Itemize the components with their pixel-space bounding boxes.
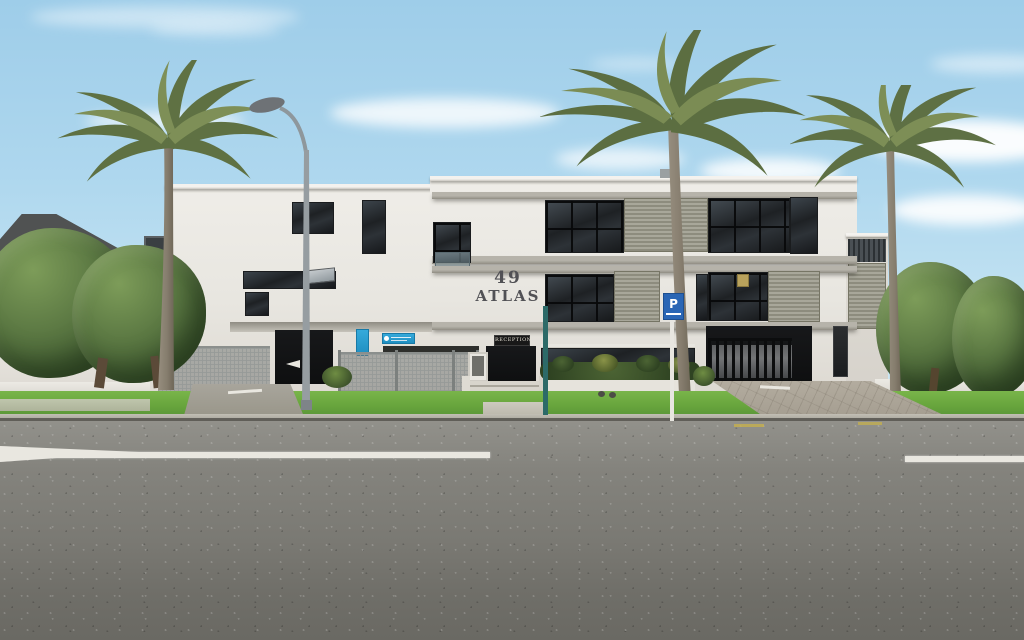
footpath — [0, 399, 150, 411]
teal-pole — [543, 306, 548, 415]
palm-tree-right — [790, 85, 1020, 430]
street-scene: 49 ATLAS RECEPTION — [0, 0, 1024, 640]
notice-board-paper — [472, 356, 484, 376]
juliet-balcony-glass — [435, 252, 470, 267]
mesh-fence — [340, 352, 478, 392]
sign-pole — [670, 318, 674, 421]
blue-sign-text-line — [391, 337, 411, 338]
reception-sign: RECEPTION — [494, 335, 530, 346]
palm-tree-center — [540, 30, 830, 430]
parking-sign: P — [663, 293, 684, 320]
road-line — [905, 456, 1024, 462]
reception-entrance — [486, 346, 536, 382]
utility-cover — [609, 392, 616, 398]
street-lamp — [240, 90, 330, 415]
utility-cover — [598, 391, 605, 397]
cloud — [330, 98, 560, 128]
parking-sign-text-line — [666, 313, 681, 315]
building-number-text: 49 — [470, 268, 546, 288]
blue-sign-logo-dot — [384, 336, 389, 341]
cloud — [150, 22, 280, 36]
yellow-line-dash — [858, 422, 882, 425]
fence-post — [452, 350, 455, 392]
blue-sign-text-line — [391, 340, 407, 341]
yellow-line-dash — [734, 424, 764, 427]
window — [362, 200, 386, 254]
fence-post — [395, 350, 398, 392]
building-name-text: ATLAS — [466, 287, 550, 305]
